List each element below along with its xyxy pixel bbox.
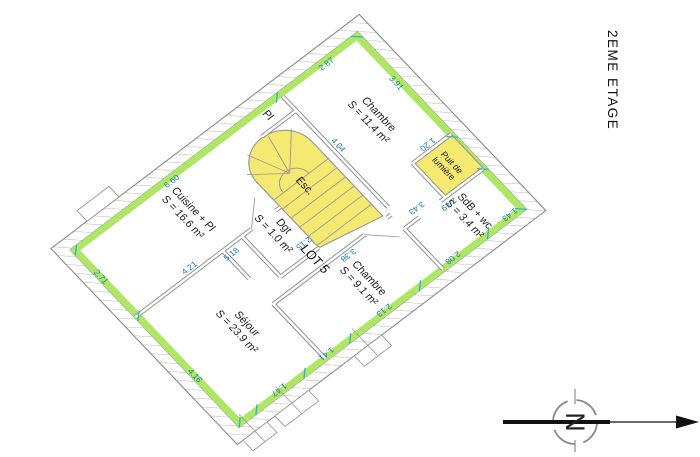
north-arrow-head-icon [676,416,699,429]
dimension-labels: 3.91 2.87 6.60 1.43 2.08 2.13 1.41 1.47 … [70,34,524,428]
outer-wall-inner-line [70,32,527,428]
interior-walls [75,38,522,425]
building: Chambre S = 11.4 m² SdB + wc S = 3.4 m² … [41,4,556,452]
north-letter: N [560,412,590,432]
room-area-dgt: S = 1.0 m² [251,213,295,256]
north-compass: N [503,389,699,452]
floor-title: 2EME ETAGE [605,30,620,130]
green-wall-band [75,36,521,423]
dimension-label: 3.43 [407,200,427,217]
dimension-ticks [70,32,527,428]
dimension-label: 4.21 [179,259,199,276]
floorplan-canvas: Chambre S = 11.4 m² SdB + wc S = 3.4 m² … [0,0,700,452]
